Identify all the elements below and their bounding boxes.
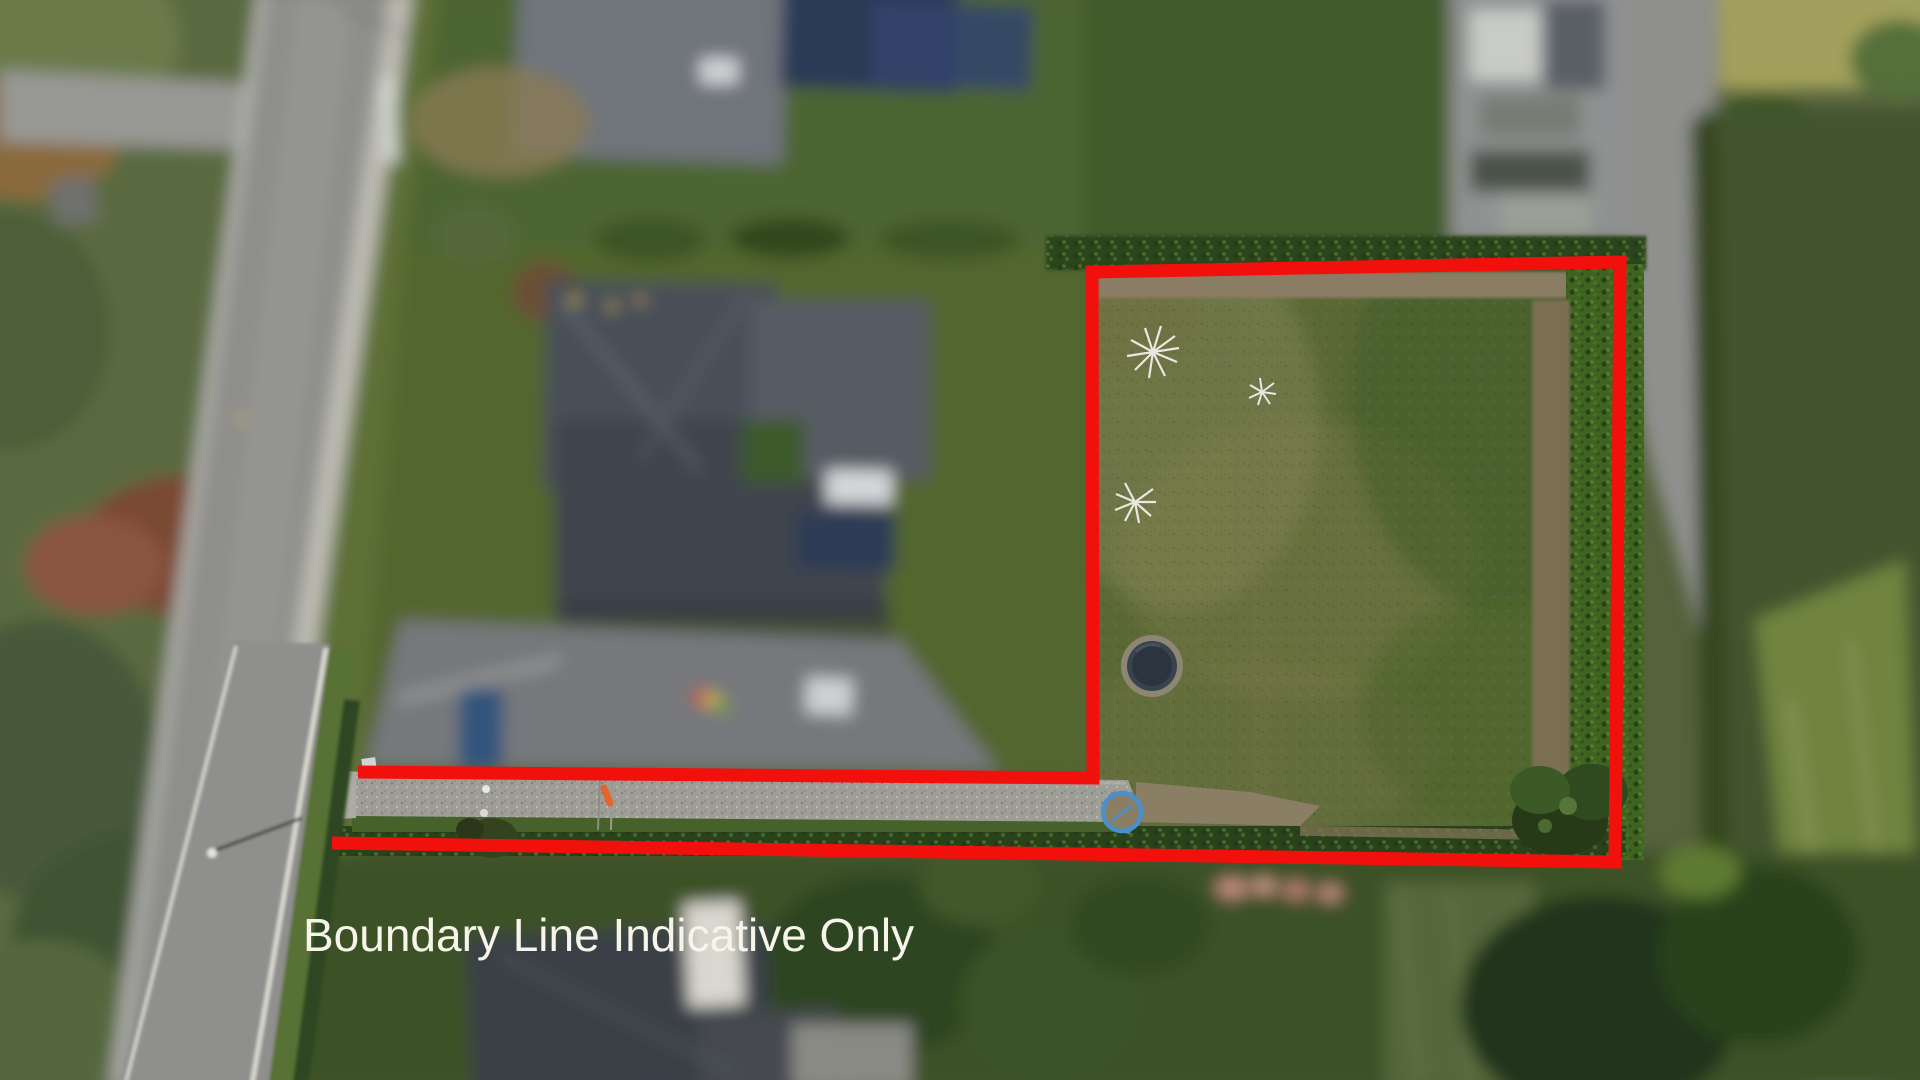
roof-vent (570, 295, 580, 305)
aerial-photo-stage: Boundary Line Indicative Only (0, 0, 1920, 1080)
shrub-highlight (1559, 797, 1577, 815)
tree-canopy (1070, 875, 1210, 975)
streetlight-lamp (207, 848, 217, 858)
parked-blue-car (458, 688, 503, 769)
northeast-roof (1480, 96, 1580, 136)
pink-flower-bed (1216, 878, 1248, 898)
aerial-photo: Boundary Line Indicative Only (0, 0, 1920, 1080)
hedgerow (595, 218, 705, 262)
white-post-dot (482, 785, 490, 793)
northeast-roof (1470, 10, 1540, 80)
northeast-paving (1500, 196, 1590, 234)
northeast-roof (1545, 0, 1605, 90)
road-marker-dot (236, 415, 244, 423)
skylight (826, 469, 893, 504)
garage-door (805, 677, 853, 715)
hedgerow-tree (435, 205, 515, 265)
pink-flower-bed (1252, 878, 1276, 894)
pink-flower-bed (1282, 881, 1310, 899)
caption-boundary-disclaimer: Boundary Line Indicative Only (303, 909, 914, 961)
roof-vent (608, 302, 616, 310)
hedgerow (880, 220, 1020, 260)
gravel-patch (410, 67, 590, 177)
roof-vent (636, 296, 644, 304)
shrub-highlight (1538, 819, 1552, 833)
house-solar-panels (795, 511, 896, 571)
south-paving (792, 1024, 912, 1080)
bright-bush (1660, 846, 1740, 898)
white-post-dot (480, 809, 488, 817)
dirt-strip-east (1532, 300, 1570, 840)
cross-street (0, 70, 262, 150)
hedgerow (730, 218, 850, 258)
solar-array (871, 1, 1034, 91)
playhouse-green (715, 698, 731, 714)
road-island (49, 175, 99, 227)
northeast-garden (1470, 150, 1590, 192)
courtyard-garden (742, 420, 804, 484)
neighbour-lawn-north (1085, 0, 1445, 252)
north-roof-skylight (700, 58, 738, 84)
red-bush (25, 515, 165, 615)
pink-flower-bed (1318, 885, 1342, 901)
